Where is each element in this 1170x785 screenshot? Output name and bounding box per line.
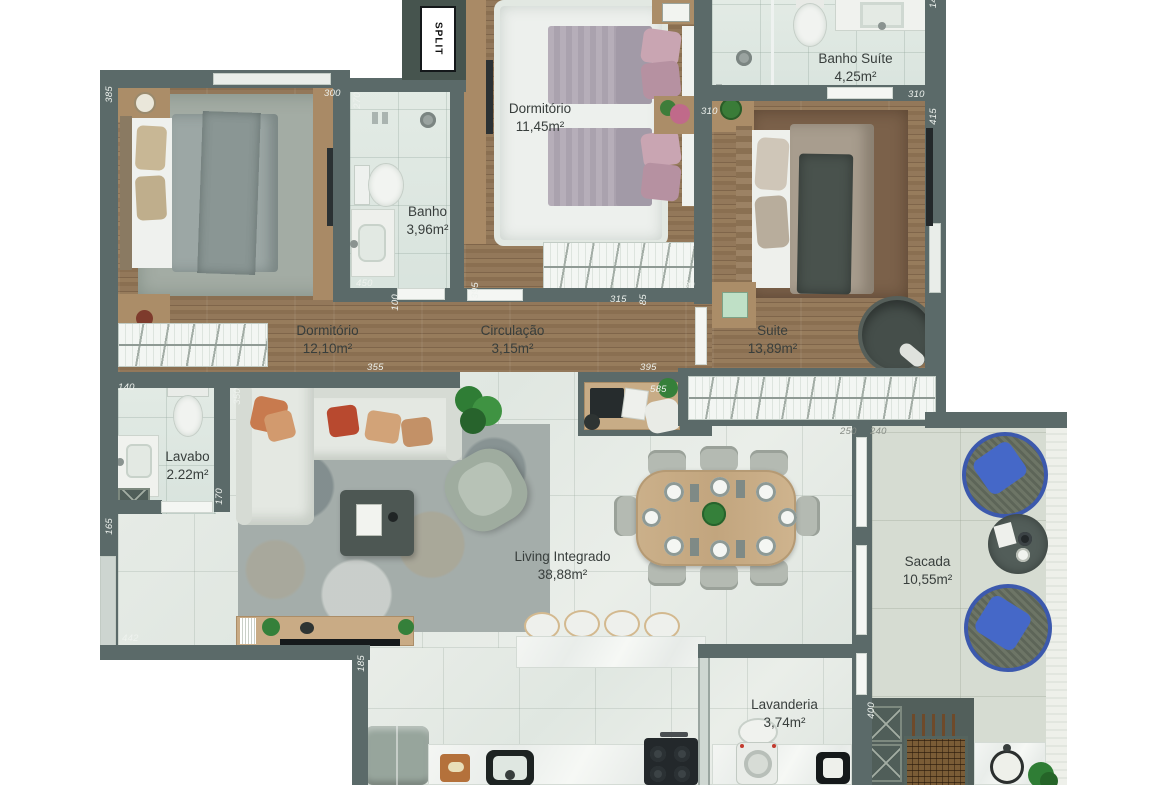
pillow — [640, 60, 682, 100]
laptop — [590, 388, 624, 418]
placemat — [690, 538, 699, 556]
faucet — [878, 22, 886, 30]
toilet — [794, 4, 826, 46]
pillow — [754, 195, 790, 249]
dining-chair — [700, 446, 738, 472]
shower-glass — [771, 0, 774, 96]
plate — [710, 477, 730, 497]
split-unit: SPLIT — [420, 6, 456, 72]
tv-panel — [926, 128, 933, 226]
wall-banho-top — [333, 78, 466, 92]
pillow — [640, 28, 682, 67]
dim-450: 450 — [356, 278, 373, 289]
bed-headboard — [736, 126, 752, 292]
bar-island — [516, 636, 706, 668]
plate — [642, 508, 661, 527]
room-area: 3,15m² — [450, 340, 575, 358]
dim-250: 250 — [840, 426, 857, 437]
glass-divider — [698, 656, 710, 785]
dim-585: 585 — [650, 384, 667, 395]
dim-310-suite: 310 — [701, 106, 718, 117]
shampoo-bottles — [372, 112, 378, 124]
room-name: Banho Suíte — [788, 50, 923, 68]
dim-415: 415 — [928, 108, 939, 125]
burner — [674, 766, 690, 782]
food-item — [448, 762, 464, 772]
bar-stool — [566, 612, 598, 636]
toilet — [369, 164, 403, 206]
burner — [650, 766, 666, 782]
room-name: Suite — [710, 322, 835, 340]
barbecue-grill — [904, 736, 968, 785]
closet-hatch — [118, 323, 268, 367]
dim-310-banho-suite: 310 — [908, 89, 925, 100]
closet-hatch — [543, 242, 699, 292]
room-label-lavanderia: Lavanderia 3,74m² — [712, 696, 857, 731]
decor-box — [722, 292, 748, 318]
room-label-circulacao: Circulação 3,15m² — [450, 322, 575, 357]
pillow — [754, 137, 790, 191]
plate — [756, 482, 776, 502]
fridge-door-split — [396, 726, 398, 785]
placemat — [736, 540, 745, 558]
wall-corridor-living — [100, 372, 460, 388]
flower-vase — [670, 104, 690, 124]
room-name: Dormitório — [460, 100, 620, 118]
room-area: 2.22m² — [125, 466, 250, 484]
placemat — [736, 480, 745, 498]
centerpiece-plant — [702, 502, 726, 526]
bed-headboard — [120, 116, 132, 270]
window — [213, 73, 331, 85]
room-area: 38,88m² — [490, 566, 635, 584]
bed-headboard — [682, 26, 694, 102]
floor-plan: SPLIT Dormitório 11,45m² Banho Suíte 4,2… — [0, 0, 1170, 785]
bed-throw — [797, 154, 853, 295]
room-label-suite: Suite 13,89m² — [710, 322, 835, 357]
room-label-banho: Banho 3,96m² — [380, 203, 475, 238]
room-label-living: Living Integrado 38,88m² — [490, 548, 635, 583]
room-name: Lavabo — [125, 448, 250, 466]
washer-knob — [740, 744, 744, 748]
cup — [1016, 548, 1030, 562]
decor-tray — [300, 622, 314, 634]
room-area: 3,96m² — [380, 221, 475, 239]
door-suite — [696, 308, 706, 364]
dim-165: 165 — [104, 518, 115, 535]
room-area: 13,89m² — [710, 340, 835, 358]
picture-frame — [662, 3, 690, 22]
decor-slats — [240, 618, 256, 644]
door-lavabo — [162, 502, 212, 512]
dim-350: 350 — [232, 388, 243, 405]
dim-442: 442 — [122, 633, 139, 644]
dim-355: 355 — [367, 362, 384, 373]
plate — [756, 536, 776, 556]
toilet — [174, 396, 202, 436]
dim-315: 315 — [610, 294, 627, 305]
sacada-glass-panel — [857, 654, 866, 694]
bed-throw — [197, 111, 261, 275]
pillow — [326, 404, 360, 438]
plant-pot — [398, 619, 414, 635]
burner — [674, 746, 690, 762]
faucet — [505, 770, 515, 780]
shampoo-bottles — [382, 112, 388, 124]
room-area: 10,55m² — [855, 571, 1000, 589]
room-name: Sacada — [855, 553, 1000, 571]
dim-300: 300 — [324, 88, 341, 99]
room-name: Banho — [380, 203, 475, 221]
wall-dorm2-suite — [694, 0, 712, 304]
window — [929, 223, 941, 293]
sacada-ledge — [1046, 428, 1067, 785]
room-name: Living Integrado — [490, 548, 635, 566]
burner — [650, 746, 666, 762]
bar-stool — [606, 612, 638, 636]
faucet — [350, 240, 358, 248]
bar-stool — [646, 614, 678, 638]
pillow — [364, 410, 402, 445]
pillow — [640, 162, 682, 202]
dim-400: 400 — [866, 702, 877, 719]
bed-headboard — [682, 128, 694, 206]
washer-drum — [744, 750, 772, 778]
room-area: 3,74m² — [712, 714, 857, 732]
room-label-banho-suite: Banho Suíte 4,25m² — [788, 50, 923, 85]
decor-bowl — [388, 512, 398, 522]
sacada-glass-panel — [857, 438, 866, 526]
room-label-sacada: Sacada 10,55m² — [855, 553, 1000, 588]
skewer — [922, 714, 925, 736]
placemat — [690, 484, 699, 502]
room-name: Lavanderia — [712, 696, 857, 714]
pan-handle — [660, 732, 688, 737]
skewer — [932, 714, 935, 736]
wall-banhosuite-bottom — [694, 85, 944, 101]
toilet-tank — [355, 166, 369, 204]
pillow — [135, 125, 167, 171]
pillow — [135, 175, 167, 221]
room-label-dormitorio-1: Dormitório 12,10m² — [265, 322, 390, 357]
door-banho-suite — [828, 88, 892, 98]
bar-stool — [526, 614, 558, 638]
wall-kitchen-left — [352, 656, 368, 785]
dim-85: 85 — [638, 294, 649, 305]
room-label-dormitorio-2: Dormitório 11,45m² — [460, 100, 620, 135]
wall-bottom-left — [100, 645, 370, 660]
dining-chair — [796, 496, 820, 536]
plant-pot — [1040, 772, 1058, 785]
shaft-duct — [870, 744, 902, 782]
split-label: SPLIT — [433, 22, 444, 55]
table-lamp — [134, 92, 156, 114]
plate — [710, 540, 730, 560]
closet-hatch — [688, 376, 936, 420]
washer-knob — [772, 744, 776, 748]
plate — [778, 508, 797, 527]
window-living-left — [100, 556, 116, 646]
dining-chair — [700, 564, 738, 590]
room-area: 11,45m² — [460, 118, 620, 136]
dim-185: 185 — [356, 655, 367, 672]
wall-lavabo-bottom — [100, 500, 162, 514]
dim-100: 100 — [390, 294, 401, 311]
faucet — [1003, 744, 1011, 752]
round-sink — [990, 750, 1024, 784]
room-area: 4,25m² — [788, 68, 923, 86]
cup — [1018, 532, 1032, 546]
dim-385: 385 — [104, 86, 115, 103]
dim-240: 240 — [870, 426, 887, 437]
plate — [664, 482, 684, 502]
dim-140: 140 — [118, 382, 135, 393]
wall-dorm1-banho — [333, 82, 350, 302]
decor-bowl — [584, 414, 600, 430]
skewer — [952, 714, 955, 736]
room-name: Circulação — [450, 322, 575, 340]
room-name: Dormitório — [265, 322, 390, 340]
dim-170: 170 — [214, 488, 225, 505]
dining-chair — [614, 496, 638, 536]
dim-270: 270 — [352, 92, 363, 109]
wall-kitchen-lavanderia — [698, 644, 858, 658]
skewer — [942, 714, 945, 736]
room-label-lavabo: Lavabo 2.22m² — [125, 448, 250, 483]
skewer — [912, 714, 915, 736]
plant-pot — [720, 98, 742, 120]
plant-monstera — [460, 408, 486, 434]
book — [356, 504, 382, 536]
wall-sacada-top — [925, 412, 1067, 428]
dim-395-corridor: 395 — [640, 362, 657, 373]
door-banho — [398, 289, 444, 299]
pillow — [400, 416, 433, 447]
plate — [664, 536, 684, 556]
shower-head — [420, 112, 436, 128]
dim-14: 14 — [928, 0, 939, 8]
plant-pot — [262, 618, 280, 636]
room-area: 12,10m² — [265, 340, 390, 358]
dim-395-door: 395 — [470, 282, 481, 299]
shower-head — [736, 50, 752, 66]
dim-290: 290 — [678, 280, 695, 291]
papers — [622, 389, 648, 420]
laundry-sink-basin — [823, 758, 843, 778]
